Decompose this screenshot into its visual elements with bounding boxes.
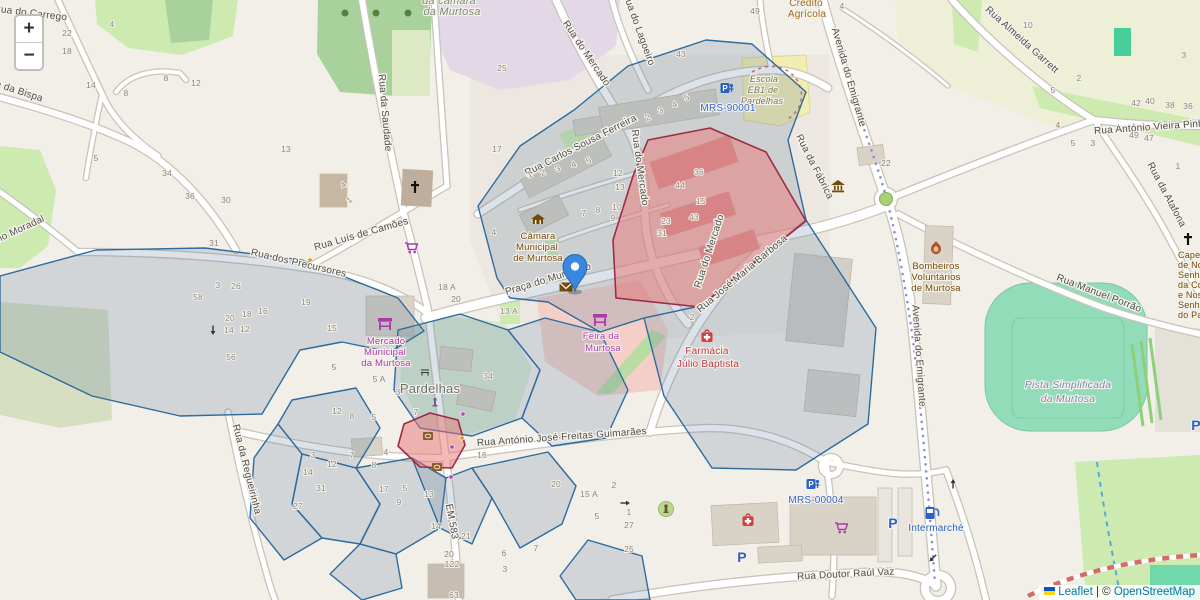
parcel-cluster-5	[330, 544, 402, 600]
house-number: 7	[534, 543, 539, 553]
house-number: 13	[281, 144, 291, 154]
poi-label: da Murtosa	[1041, 393, 1096, 405]
map-canvas[interactable]: PPRua da BispaRua do CarregoCaminho Mora…	[0, 0, 1200, 600]
poi-label: Mercado	[367, 336, 405, 347]
house-number: 9	[611, 213, 616, 223]
poi-label: Senhora	[1178, 270, 1200, 280]
poi-label: Municipal	[364, 347, 406, 358]
street-label: Rua Luís de Camões	[313, 216, 410, 253]
house-number: 31	[657, 228, 667, 238]
house-number: 14	[303, 467, 313, 477]
house-number: 36	[185, 191, 195, 201]
poi-label: e Nossa	[1178, 290, 1200, 300]
artwork-icon	[432, 463, 442, 471]
building	[758, 545, 803, 563]
house-number: 34	[162, 168, 172, 178]
house-number: 31	[209, 238, 219, 248]
poi-label: Pardelhas	[400, 381, 461, 396]
house-number: 15 A	[580, 489, 598, 499]
arrow-icon	[621, 501, 631, 506]
poi-label: MRS-90001	[700, 103, 755, 114]
poi-label: do Parto	[1178, 310, 1200, 320]
house-number: 7	[350, 450, 355, 460]
house-number: 13	[615, 182, 625, 192]
house-number: 15	[327, 323, 337, 333]
house-number: 3	[1182, 50, 1187, 60]
house-number: 4	[492, 227, 497, 237]
house-number: 3	[311, 450, 316, 460]
parcel-bottom-mid	[560, 540, 650, 600]
house-number: 4	[384, 447, 389, 457]
poi-label: de Murtosa	[513, 253, 563, 264]
poi-label: da Murtosa	[423, 6, 480, 18]
house-number: 12	[240, 324, 250, 334]
house-number: 1	[627, 507, 632, 517]
house-number: 14	[431, 521, 441, 531]
house-number: 7	[414, 407, 419, 417]
tree-icon	[405, 10, 412, 17]
house-number: 4	[1056, 120, 1061, 130]
house-number: 49	[1129, 130, 1139, 140]
house-number: 44	[675, 180, 685, 190]
house-number: 18	[62, 46, 72, 56]
meadow-strip	[392, 30, 430, 96]
house-number: 8	[350, 411, 355, 421]
house-number: 5	[332, 362, 337, 372]
house-number: 36	[694, 167, 704, 177]
house-number: 5	[372, 412, 377, 422]
house-number: 17	[379, 484, 389, 494]
house-number: 20	[551, 479, 561, 489]
house-number: 4	[840, 1, 845, 11]
house-number: 10	[1023, 20, 1033, 30]
wood-top-left	[165, 0, 213, 43]
house-number: 2	[690, 312, 695, 322]
house-number: 5	[403, 483, 408, 493]
poi-label: EB1 de	[748, 85, 779, 95]
carrego-branch	[86, 94, 102, 178]
poi-label: Murtosa	[585, 343, 621, 354]
house-number: 8	[124, 88, 129, 98]
house-number: 43	[676, 49, 686, 59]
house-number: 5	[1071, 138, 1076, 148]
house-number: 9	[397, 497, 402, 507]
house-number: 14	[224, 325, 234, 335]
house-number: 43	[689, 212, 699, 222]
poi-label: MRS-00004	[788, 495, 843, 506]
house-number: 25	[497, 63, 507, 73]
house-number: 2	[612, 480, 617, 490]
house-number: 27	[293, 501, 303, 511]
house-number: 47	[1144, 133, 1154, 143]
street-label: Rua da Atafona	[1145, 161, 1189, 230]
house-number: 5	[595, 511, 600, 521]
zoom-in-button[interactable]: +	[16, 16, 42, 42]
poi-label: Bombeiros	[912, 261, 959, 272]
poi-label: Câmara	[521, 231, 557, 242]
attribution-separator: | ©	[1093, 586, 1114, 598]
house-number: 17	[492, 144, 502, 154]
house-number: 40	[1145, 96, 1155, 106]
house-number: 3	[503, 564, 508, 574]
poi-label: de Murtosa	[911, 283, 961, 294]
poi-label: Pista Simplificada	[1025, 379, 1111, 391]
building	[898, 488, 912, 556]
house-number: 3	[1091, 138, 1096, 148]
house-number: 16	[477, 450, 487, 460]
zoom-control: + −	[14, 14, 44, 71]
house-number: 13 A	[500, 306, 518, 316]
ukraine-flag-icon	[1044, 587, 1055, 595]
house-number: 15	[696, 196, 706, 206]
poi-label: P	[888, 515, 898, 531]
house-number: 18 A	[438, 282, 456, 292]
house-number: 63	[449, 590, 459, 600]
tree-icon	[342, 10, 349, 17]
house-number: 7	[582, 208, 587, 218]
attribution-bar: Leaflet | © OpenStreetMap	[1039, 585, 1200, 600]
house-number: 16	[258, 306, 268, 316]
house-number: 5	[94, 153, 99, 163]
poi-label: Municipal	[516, 242, 558, 253]
house-number: 5 A	[373, 374, 386, 384]
dot-icon	[460, 436, 464, 440]
house-number: 8	[596, 205, 601, 215]
house-number: 20	[444, 549, 454, 559]
dot-icon	[461, 412, 465, 416]
street-label: Avenida do Emigrante	[829, 27, 868, 129]
house-number: 20	[451, 294, 461, 304]
poi-label: Agrícola	[788, 9, 827, 20]
building	[320, 174, 347, 207]
poi-label: Voluntários	[911, 272, 960, 283]
house-number: 56	[226, 352, 236, 362]
poi-label: Farmácia	[685, 346, 729, 357]
house-number: 6	[502, 548, 507, 558]
grass-left	[0, 146, 56, 268]
dot-icon	[449, 475, 453, 479]
house-number: 10	[612, 202, 622, 212]
tree-icon	[373, 10, 380, 17]
poi-label: Júlio Baptista	[677, 359, 740, 370]
house-number: 1	[1176, 161, 1181, 171]
poi-label: Senhora	[1178, 300, 1200, 310]
poi-label: Feira da	[583, 331, 620, 342]
house-number: 12	[613, 168, 623, 178]
parking-meter-icon: P	[807, 479, 820, 489]
poi-label: Crédito	[789, 0, 823, 9]
artwork-icon	[423, 432, 433, 440]
poi-label: Escola	[750, 74, 778, 84]
house-number: 30	[221, 195, 231, 205]
house-number: 23	[661, 216, 671, 226]
roundabout-tree-icon	[880, 193, 893, 206]
poi-label: P	[1191, 417, 1200, 433]
building	[401, 169, 433, 207]
house-number: 12	[332, 406, 342, 416]
poi-label: da Conceição	[1178, 280, 1200, 290]
parking-meter-icon: P	[721, 83, 734, 93]
leaflet-link[interactable]: Leaflet	[1058, 586, 1093, 598]
house-number: 58	[193, 292, 203, 302]
house-number: 25	[624, 544, 634, 554]
house-number: 36	[1183, 101, 1193, 111]
svg-text:P: P	[722, 84, 728, 93]
house-number: 12	[191, 78, 201, 88]
map-tiles: PPRua da BispaRua do CarregoCaminho Mora…	[0, 0, 1200, 600]
house-number: 21	[461, 531, 471, 541]
house-number: 2	[1077, 73, 1082, 83]
house-number: 22	[62, 28, 72, 38]
house-number: 8	[372, 460, 377, 470]
zoom-out-button[interactable]: −	[16, 42, 42, 69]
memorial-icon	[659, 502, 674, 517]
link-avenida-garrett	[886, 120, 1094, 200]
house-number: 38	[1165, 100, 1175, 110]
poi-label: P	[737, 549, 747, 565]
house-number: 49	[750, 6, 760, 16]
house-number: 26	[231, 281, 241, 291]
teal-building	[1114, 28, 1131, 56]
street-label: Rua Doutor Raúl Vaz	[797, 566, 895, 582]
house-number: 22	[881, 158, 891, 168]
house-number: 14	[86, 80, 96, 90]
house-number: 122	[445, 559, 460, 569]
poi-label: Intermarché	[908, 523, 964, 534]
house-number: 4	[110, 19, 115, 29]
poi-label: de Nossa	[1178, 260, 1200, 270]
fuel-icon	[926, 507, 939, 519]
house-number: 42	[1131, 98, 1141, 108]
house-number: 3	[216, 280, 221, 290]
house-number: 18	[242, 309, 252, 319]
house-number: 3	[396, 387, 401, 397]
poi-label: da Murtosa	[361, 358, 411, 369]
svg-text:P: P	[808, 480, 814, 489]
house-number: 31	[316, 483, 326, 493]
dot-icon	[450, 445, 454, 449]
house-number: 20	[225, 313, 235, 323]
house-number: 34	[483, 371, 493, 381]
house-number: 27	[624, 520, 634, 530]
house-number: 13	[424, 489, 434, 499]
chapel-cross-icon	[1184, 233, 1192, 245]
openstreetmap-link[interactable]: OpenStreetMap	[1114, 586, 1195, 598]
house-number: 12	[327, 459, 337, 469]
house-number: 8	[164, 73, 169, 83]
house-number: 5	[1051, 85, 1056, 95]
poi-label: Capela	[1178, 250, 1200, 260]
house-number: 19	[301, 297, 311, 307]
